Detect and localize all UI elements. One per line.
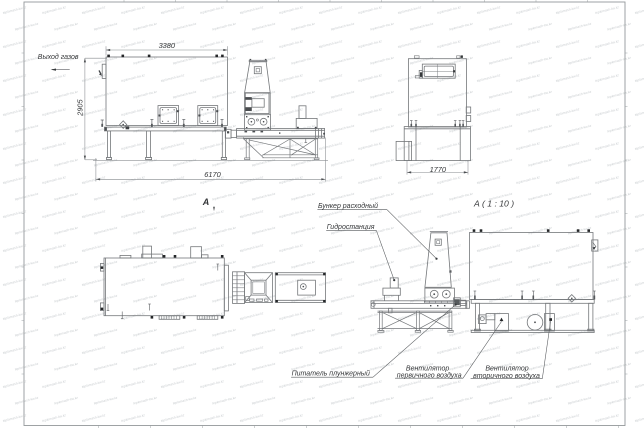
svg-text:3380: 3380 bbox=[159, 41, 176, 50]
svg-text:вторичного воздуха: вторичного воздуха bbox=[473, 372, 540, 380]
svg-text:1770: 1770 bbox=[430, 165, 447, 174]
svg-text:Питатель плунжерный: Питатель плунжерный bbox=[292, 370, 370, 378]
svg-text:А ( 1 : 10 ): А ( 1 : 10 ) bbox=[473, 199, 514, 209]
svg-text:Бункер расходный: Бункер расходный bbox=[318, 202, 378, 210]
svg-text:Вентилятор: Вентилятор bbox=[406, 365, 449, 372]
svg-text:первичного воздуха: первичного воздуха bbox=[397, 371, 462, 379]
svg-text:2905: 2905 bbox=[75, 98, 84, 116]
svg-text:Выход газов: Выход газов bbox=[38, 53, 79, 61]
svg-text:Вентилятор: Вентилятор bbox=[485, 366, 528, 373]
svg-text:Гидростанция: Гидростанция bbox=[327, 223, 375, 231]
svg-text:А: А bbox=[202, 197, 210, 207]
svg-text:6170: 6170 bbox=[204, 170, 221, 179]
